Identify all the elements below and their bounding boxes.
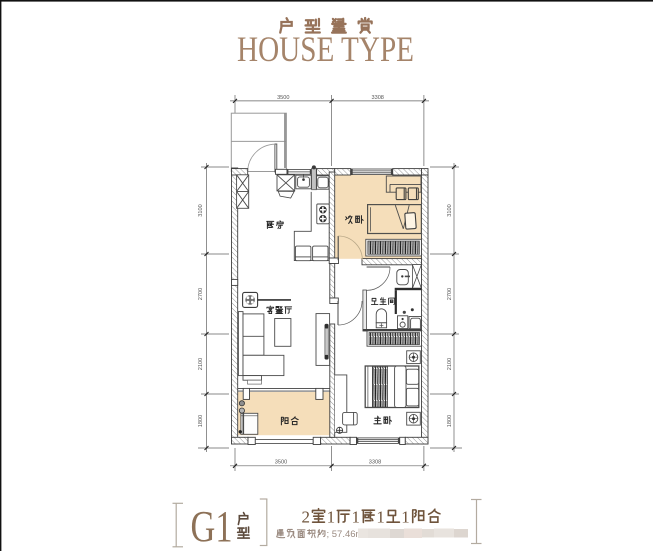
svg-text:2100: 2100 (198, 358, 204, 370)
svg-text:HOUSE TYPE: HOUSE TYPE (237, 29, 414, 69)
svg-text:2700: 2700 (447, 288, 453, 300)
svg-text:3500: 3500 (277, 95, 289, 101)
svg-text:1: 1 (376, 508, 385, 527)
svg-text:1: 1 (327, 508, 336, 527)
svg-text:G1: G1 (191, 501, 233, 551)
svg-text:2100: 2100 (447, 358, 453, 370)
svg-text:3100: 3100 (198, 204, 204, 216)
svg-text:1800: 1800 (447, 415, 453, 427)
svg-text:2700: 2700 (198, 288, 204, 300)
svg-text:3500: 3500 (275, 460, 287, 466)
svg-text:2: 2 (302, 508, 311, 527)
svg-text:3308: 3308 (371, 95, 383, 101)
svg-text:1800: 1800 (198, 415, 204, 427)
svg-text:3308: 3308 (369, 460, 381, 466)
svg-text:3100: 3100 (447, 204, 453, 216)
svg-text:1: 1 (401, 508, 410, 527)
svg-text:1: 1 (352, 508, 361, 527)
